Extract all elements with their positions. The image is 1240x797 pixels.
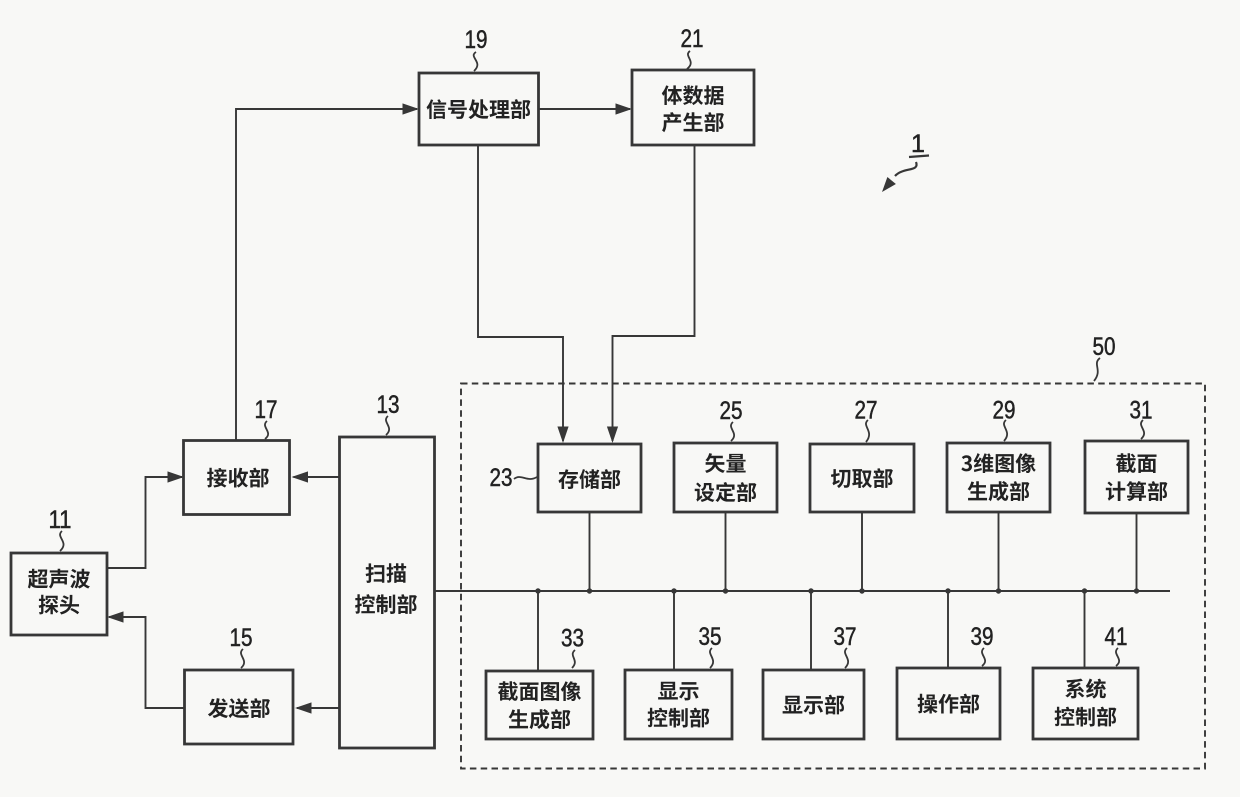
svg-text:41: 41 bbox=[1105, 623, 1128, 651]
svg-text:19: 19 bbox=[465, 26, 488, 54]
svg-text:31: 31 bbox=[1130, 397, 1153, 425]
svg-text:33: 33 bbox=[561, 625, 584, 653]
svg-text:11: 11 bbox=[49, 506, 72, 534]
svg-text:27: 27 bbox=[855, 397, 878, 425]
svg-text:13: 13 bbox=[377, 391, 400, 419]
svg-text:15: 15 bbox=[230, 624, 253, 652]
svg-text:37: 37 bbox=[834, 623, 857, 651]
svg-text:50: 50 bbox=[1093, 333, 1116, 361]
svg-text:29: 29 bbox=[993, 397, 1016, 425]
svg-text:23: 23 bbox=[490, 464, 513, 492]
svg-text:39: 39 bbox=[971, 623, 994, 651]
svg-text:1: 1 bbox=[911, 130, 925, 158]
svg-text:21: 21 bbox=[681, 25, 704, 53]
svg-text:17: 17 bbox=[255, 396, 278, 424]
svg-text:35: 35 bbox=[699, 623, 722, 651]
svg-text:25: 25 bbox=[720, 397, 743, 425]
